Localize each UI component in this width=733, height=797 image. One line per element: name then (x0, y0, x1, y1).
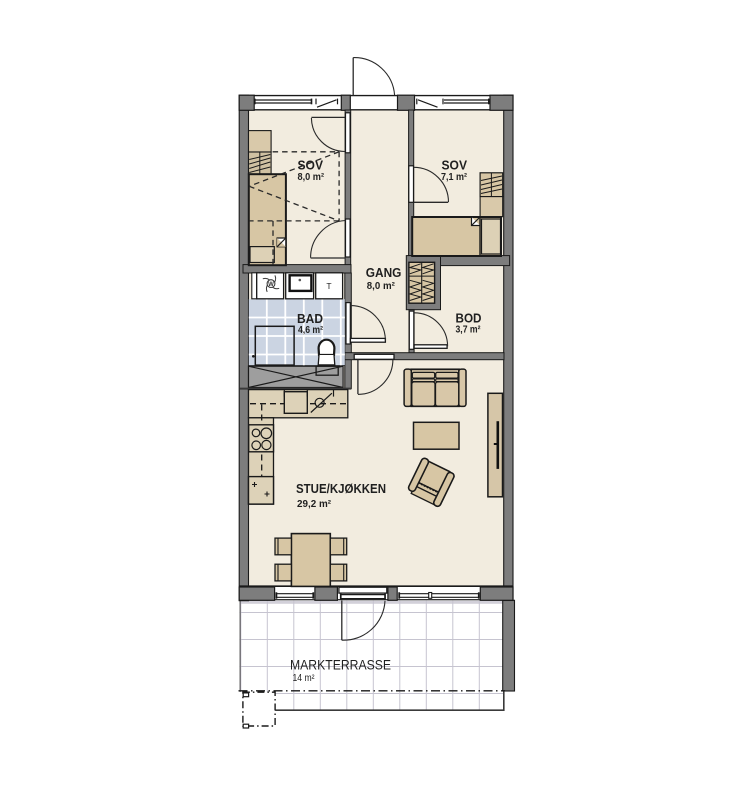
svg-text:3,7 m²: 3,7 m² (456, 325, 482, 336)
svg-text:14 m²: 14 m² (293, 673, 316, 684)
svg-text:GANG: GANG (366, 266, 402, 280)
svg-text:8,0 m²: 8,0 m² (298, 172, 325, 183)
svg-text:STUE/KJØKKEN: STUE/KJØKKEN (296, 482, 386, 496)
svg-text:8,0 m²: 8,0 m² (367, 281, 396, 292)
svg-text:BOD: BOD (456, 311, 482, 325)
svg-text:MARKTERRASSE: MARKTERRASSE (290, 658, 391, 673)
svg-text:29,2 m²: 29,2 m² (297, 499, 332, 510)
svg-text:SOV: SOV (442, 158, 468, 172)
svg-text:7,1 m²: 7,1 m² (441, 172, 468, 183)
svg-text:4,6 m²: 4,6 m² (298, 325, 324, 336)
svg-text:SOV: SOV (298, 158, 324, 172)
svg-text:T: T (326, 281, 331, 291)
svg-text:W: W (268, 282, 274, 288)
